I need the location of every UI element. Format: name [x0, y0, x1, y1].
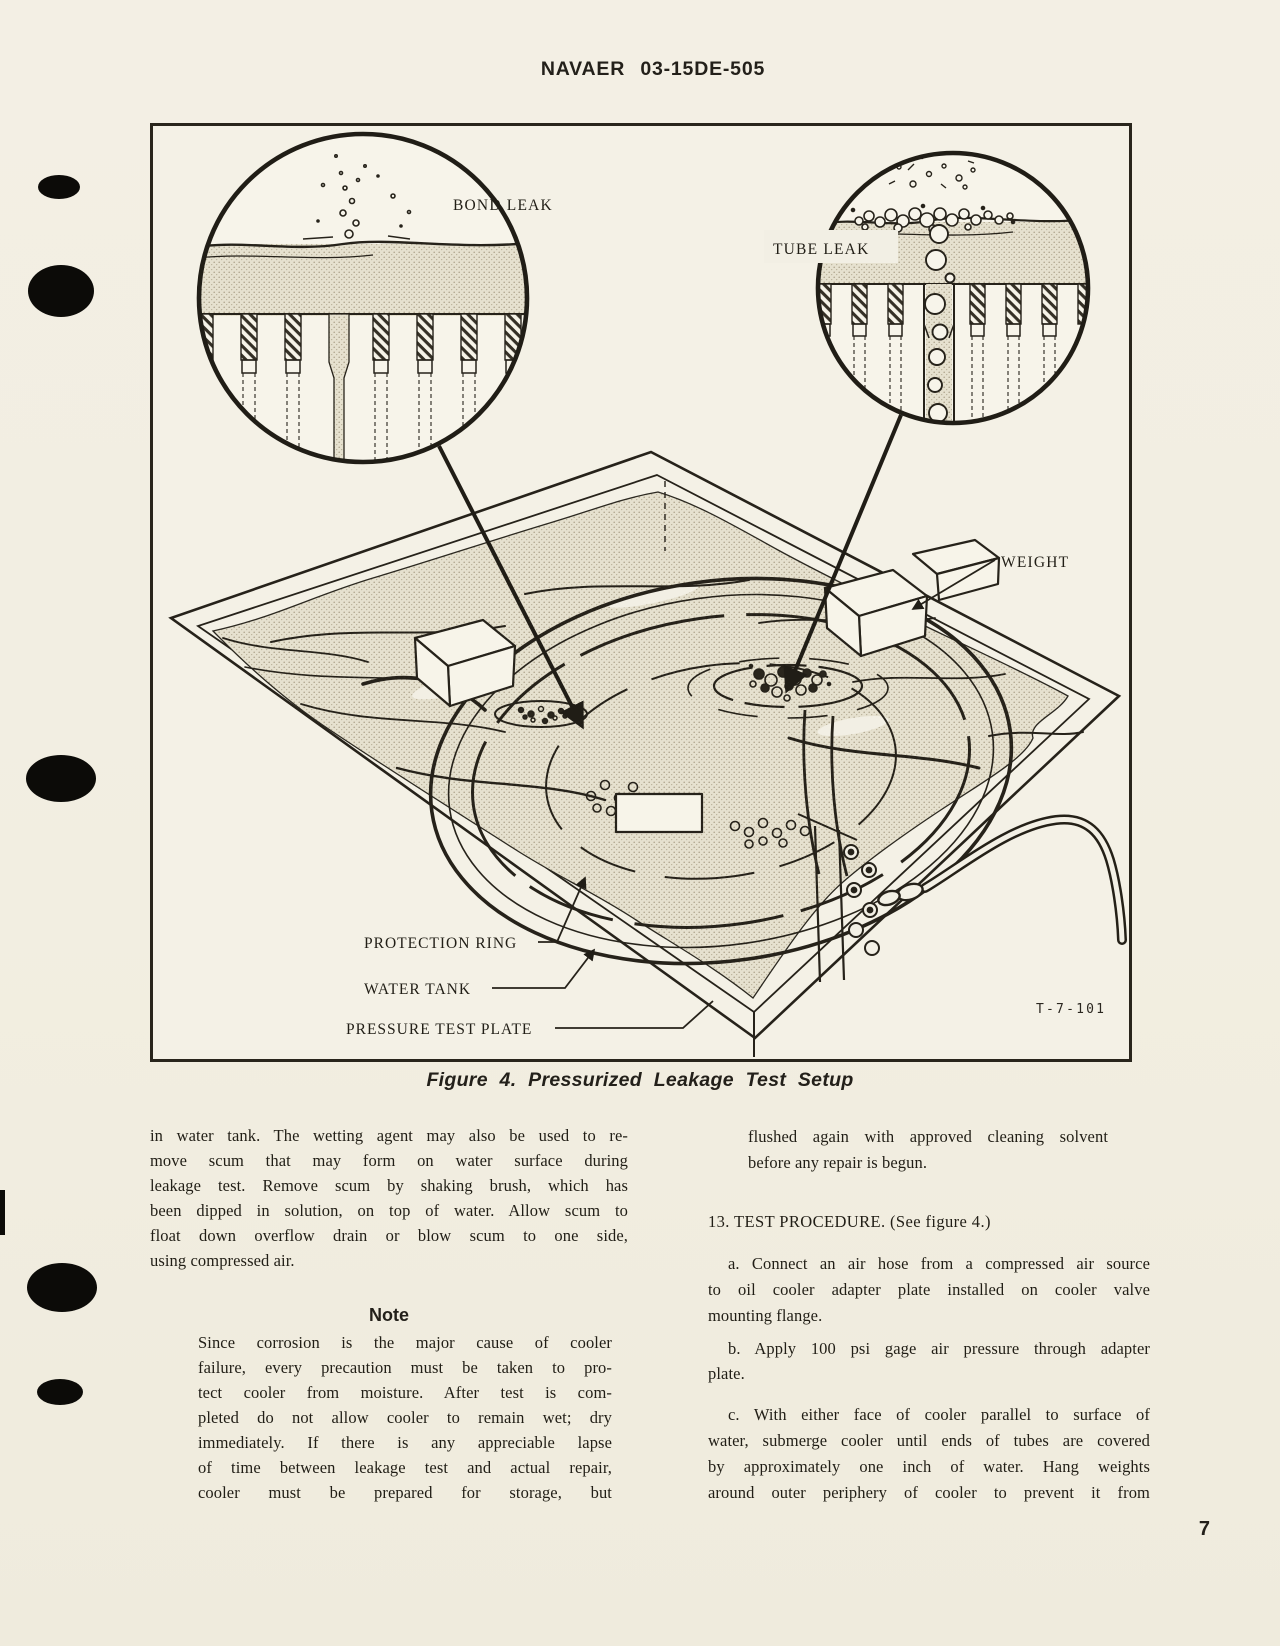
- text-line: c. With either face of cooler parallel t…: [708, 1402, 1150, 1428]
- binder-hole-mark: [27, 1263, 97, 1312]
- binder-hole-mark: [38, 175, 80, 199]
- section-13-heading: 13. TEST PROCEDURE. (See figure 4.): [708, 1209, 1150, 1235]
- text-line: flushed again with approved cleaning sol…: [748, 1124, 1108, 1150]
- text-line: tect cooler from moisture. After test is…: [198, 1380, 612, 1405]
- text-line: float down overflow drain or blow scum t…: [150, 1223, 628, 1248]
- text-line: around outer periphery of cooler to prev…: [708, 1480, 1150, 1506]
- figure-caption: Figure 4. Pressurized Leakage Test Setup: [152, 1068, 1128, 1093]
- text-line: cooler must be prepared for storage, but: [198, 1480, 612, 1505]
- text-line: pleted do not allow cooler to remain wet…: [198, 1405, 612, 1430]
- note-continuation-paragraph: flushed again with approved cleaning sol…: [748, 1124, 1108, 1176]
- bond-leak-detail: [193, 128, 537, 480]
- text-line: water, submerge cooler until ends of tub…: [708, 1428, 1150, 1454]
- manual-page: NAVAER 03-15DE-505: [0, 0, 1280, 1646]
- text-line: move scum that may form on water surface…: [150, 1148, 628, 1173]
- text-line: b. Apply 100 psi gage air pressure throu…: [708, 1336, 1150, 1361]
- binder-hole-mark: [26, 755, 96, 802]
- text-line: of time between leakage test and actual …: [198, 1455, 612, 1480]
- tube-leak-label: TUBE LEAK: [773, 241, 869, 258]
- text-line: been dipped in solution, on top of water…: [150, 1198, 628, 1223]
- water-tank-label: WATER TANK: [364, 981, 471, 998]
- binder-hole-mark: [37, 1379, 83, 1405]
- text-line: Since corrosion is the major cause of co…: [198, 1330, 612, 1355]
- page-header: NAVAER 03-15DE-505: [13, 58, 1280, 81]
- binder-hole-mark: [28, 265, 94, 317]
- col1-paragraph-1: in water tank. The wetting agent may als…: [150, 1123, 628, 1273]
- text-line: failure, every precaution must be taken …: [198, 1355, 612, 1380]
- page-number: 7: [1150, 1518, 1210, 1541]
- text-line: mounting flange.: [708, 1303, 1150, 1329]
- leakage-test-drawing: BOND LEAK: [153, 126, 1129, 1059]
- text-line: immediately. If there is any appreciable…: [198, 1430, 612, 1455]
- figure-4-illustration: BOND LEAK: [150, 123, 1132, 1062]
- text-line: before any repair is begun.: [748, 1150, 1108, 1176]
- step-b-paragraph: b. Apply 100 psi gage air pressure throu…: [708, 1336, 1150, 1386]
- text-line: in water tank. The wetting agent may als…: [150, 1123, 628, 1148]
- text-line: plate.: [708, 1361, 1150, 1386]
- scan-edge-artifact: [0, 1190, 5, 1235]
- bond-leak-label: BOND LEAK: [453, 197, 553, 214]
- weight-label: WEIGHT: [1001, 554, 1069, 571]
- text-line: using compressed air.: [150, 1248, 628, 1273]
- text-line: to oil cooler adapter plate installed on…: [708, 1277, 1150, 1303]
- drawing-number: T-7-101: [1036, 1002, 1106, 1017]
- step-a-paragraph: a. Connect an air hose from a compressed…: [708, 1251, 1150, 1329]
- pressure-test-plate-label: PRESSURE TEST PLATE: [346, 1021, 532, 1038]
- protection-ring-label: PROTECTION RING: [364, 935, 517, 952]
- text-line: a. Connect an air hose from a compressed…: [708, 1251, 1150, 1277]
- note-paragraph: Since corrosion is the major cause of co…: [198, 1330, 612, 1505]
- text-line: by approximately one inch of water. Hang…: [708, 1454, 1150, 1480]
- text-line: leakage test. Remove scum by shaking bru…: [150, 1173, 628, 1198]
- note-heading: Note: [150, 1303, 628, 1328]
- step-c-paragraph: c. With either face of cooler parallel t…: [708, 1402, 1150, 1506]
